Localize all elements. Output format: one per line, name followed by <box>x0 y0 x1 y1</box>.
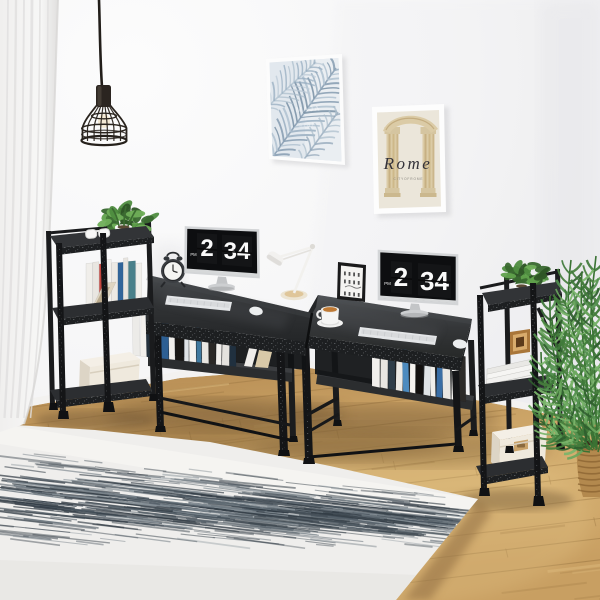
svg-text:C I T Y O F R O M E: C I T Y O F R O M E <box>394 177 423 181</box>
svg-text:s t a l: s t a l <box>299 122 314 129</box>
svg-text:PM: PM <box>190 252 197 257</box>
svg-text:Rome: Rome <box>383 154 433 173</box>
svg-text:M A J A: M A J A <box>296 106 320 114</box>
svg-text:PM: PM <box>384 281 391 286</box>
svg-text:2: 2 <box>394 262 408 292</box>
